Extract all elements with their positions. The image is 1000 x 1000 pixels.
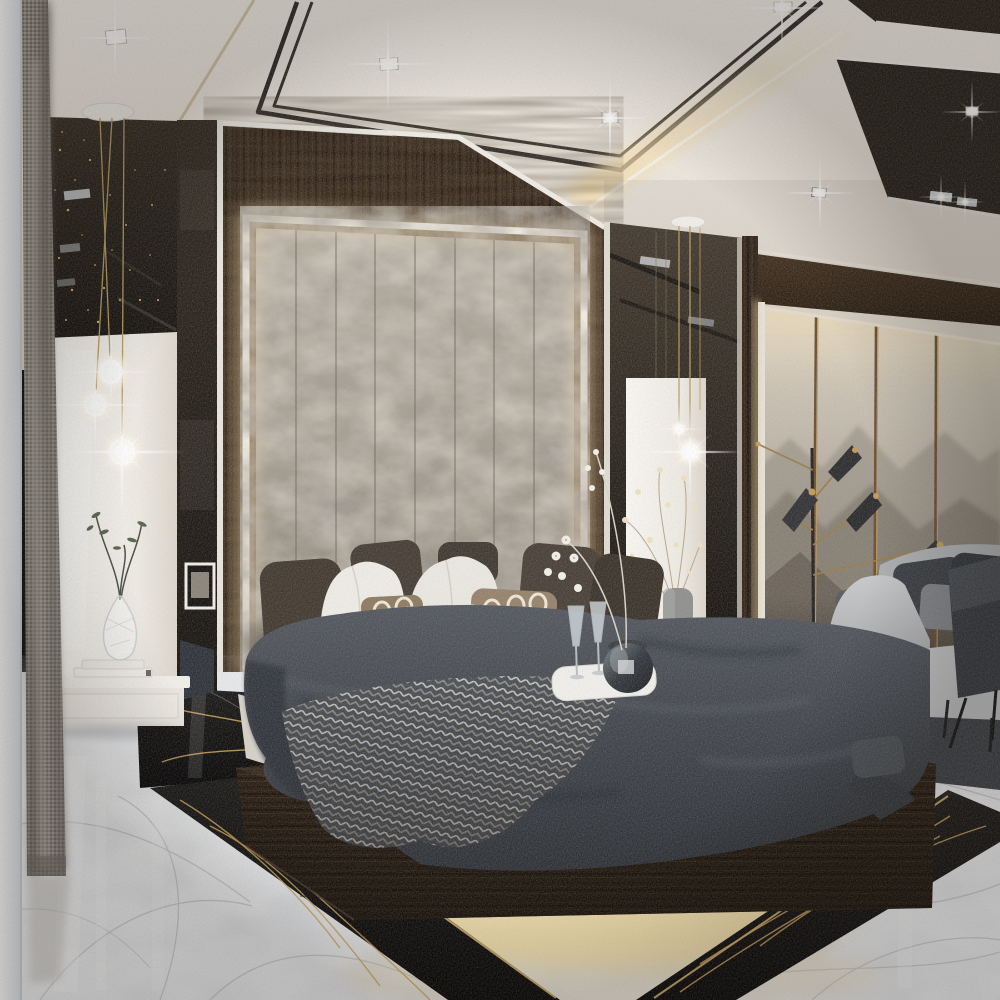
bedroom-render bbox=[0, 0, 1000, 1000]
vignette bbox=[0, 0, 1000, 1000]
bedroom-render-stage bbox=[0, 0, 1000, 1000]
